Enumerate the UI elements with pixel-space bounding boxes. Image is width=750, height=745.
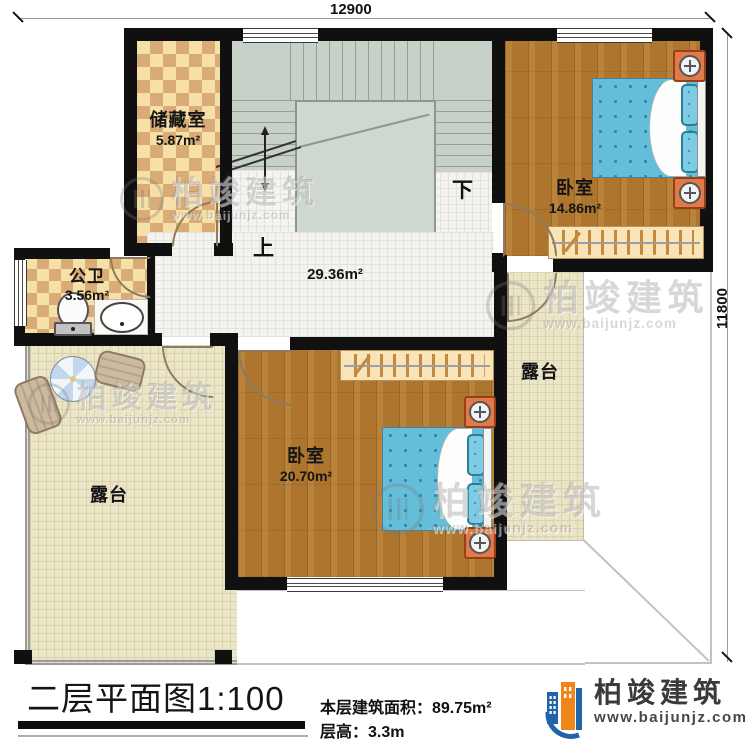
lamp-icon <box>679 55 701 77</box>
window-bedroom2-bottom <box>287 578 443 592</box>
room-name: 公卫 <box>48 262 126 287</box>
watermark-company: 柏竣建筑 <box>76 382 217 412</box>
company-logo-icon <box>538 678 588 745</box>
window-stair-top <box>243 28 318 43</box>
wardrobe-bedroom-bottom <box>340 350 494 381</box>
hall-floor <box>147 232 494 337</box>
terrace-parapet-post-left <box>14 650 32 664</box>
room-area: 14.86m² <box>533 200 617 216</box>
room-name: 露台 <box>79 481 139 507</box>
terrace-right-label: 露台 <box>510 358 570 384</box>
watermark: 柏竣建筑 www.baijunjz.com <box>120 176 319 222</box>
bedroom-top-label: 卧室 14.86m² <box>533 174 617 216</box>
bed-bedroom-top <box>592 78 706 178</box>
bed-headboard <box>697 79 706 177</box>
terrace-left-label: 露台 <box>79 481 139 507</box>
stair-flight-top <box>290 41 436 100</box>
watermark-logo-icon <box>372 483 424 535</box>
window-bathroom-left <box>14 260 27 326</box>
stair-arrow-up-icon <box>261 126 269 135</box>
wall-bath-top <box>14 248 110 259</box>
toilet-tank <box>54 322 92 336</box>
wall-bedroom2-bottom-r <box>443 577 507 590</box>
watermark-logo-icon <box>28 383 70 425</box>
stair-down-label: 下 <box>452 174 473 204</box>
roof-ridge-line <box>582 538 710 662</box>
dimension-top-value: 12900 <box>330 1 372 18</box>
room-name: 露台 <box>510 358 570 384</box>
watermark: 柏竣建筑 www.baijunjz.com <box>486 280 709 332</box>
watermark: 柏竣建筑 www.baijunjz.com <box>28 382 217 426</box>
room-area: 5.87m² <box>133 132 223 148</box>
watermark-website: www.baijunjz.com <box>432 520 607 537</box>
wall-bedroom2-bottom-l <box>225 577 287 590</box>
company-name: 柏竣建筑 <box>594 678 747 709</box>
title-underline <box>18 721 305 729</box>
hall-area-label: 29.36m² <box>292 266 378 283</box>
room-name: 卧室 <box>264 442 348 468</box>
dimension-tick <box>704 11 715 22</box>
hanger-icon <box>354 355 371 376</box>
bathroom-label: 公卫 3.56m² <box>48 262 126 303</box>
company-website: www.baijunjz.com <box>594 709 747 726</box>
dimension-line-top <box>18 18 712 19</box>
watermark: 柏竣建筑 www.baijunjz.com <box>372 482 607 536</box>
stair-void-cut-line <box>299 114 429 148</box>
wall-bedroom2-left <box>225 337 238 590</box>
room-area: 29.36m² <box>292 266 378 283</box>
nightstand <box>673 50 706 82</box>
watermark-company: 柏竣建筑 <box>171 176 319 208</box>
window-bedroom1-top <box>557 28 652 43</box>
wall-top-left <box>124 28 243 41</box>
stair-flight-right <box>432 100 492 172</box>
watermark-company: 柏竣建筑 <box>543 280 709 316</box>
watermark-company: 柏竣建筑 <box>432 482 607 520</box>
plan-title: 二层平面图1:100 <box>27 672 285 720</box>
sink-icon <box>100 302 144 333</box>
roof-area-bottom <box>232 590 585 665</box>
lamp-icon <box>679 182 701 204</box>
floor-height-stat: 层高：3.3m <box>320 718 404 742</box>
nightstand <box>673 177 706 209</box>
dimension-right-value: 11800 <box>714 286 731 331</box>
stair-up-label: 上 <box>253 232 274 262</box>
room-area: 20.70m² <box>264 468 348 484</box>
wall-bedroom2-top <box>290 337 507 350</box>
watermark-website: www.baijunjz.com <box>171 208 319 222</box>
storage-room-label: 储藏室 5.87m² <box>133 106 223 148</box>
nightstand <box>464 396 496 428</box>
dimension-tick <box>12 11 23 22</box>
wall-top-middle <box>318 28 557 41</box>
wall-bedroom1-bottom-l <box>492 255 507 272</box>
title-underline-thin <box>18 735 308 737</box>
lamp-icon <box>469 401 491 423</box>
watermark-logo-icon <box>120 177 164 221</box>
room-name: 储藏室 <box>133 106 223 132</box>
watermark-website: www.baijunjz.com <box>76 412 217 425</box>
watermark-website: www.baijunjz.com <box>543 316 709 332</box>
room-area: 3.56m² <box>48 287 126 303</box>
wall-bedroom1-left <box>492 41 505 203</box>
wardrobe-bedroom-top <box>548 226 704 259</box>
watermark-logo-icon <box>486 281 535 330</box>
floor-plan-canvas: 上 下 储藏室 5.87m² 公卫 3.56 <box>0 0 750 745</box>
wall-bath-left-upper <box>14 248 25 260</box>
dimension-line-right <box>727 33 728 662</box>
floor-area-stat: 本层建筑面积：89.75m² <box>320 694 492 718</box>
bedroom-bottom-label: 卧室 20.70m² <box>264 442 348 484</box>
terrace-parapet-post-right <box>215 650 232 664</box>
company-logo: 柏竣建筑 www.baijunjz.com <box>538 678 747 745</box>
room-name: 卧室 <box>533 174 617 200</box>
hanger-icon <box>564 232 581 253</box>
